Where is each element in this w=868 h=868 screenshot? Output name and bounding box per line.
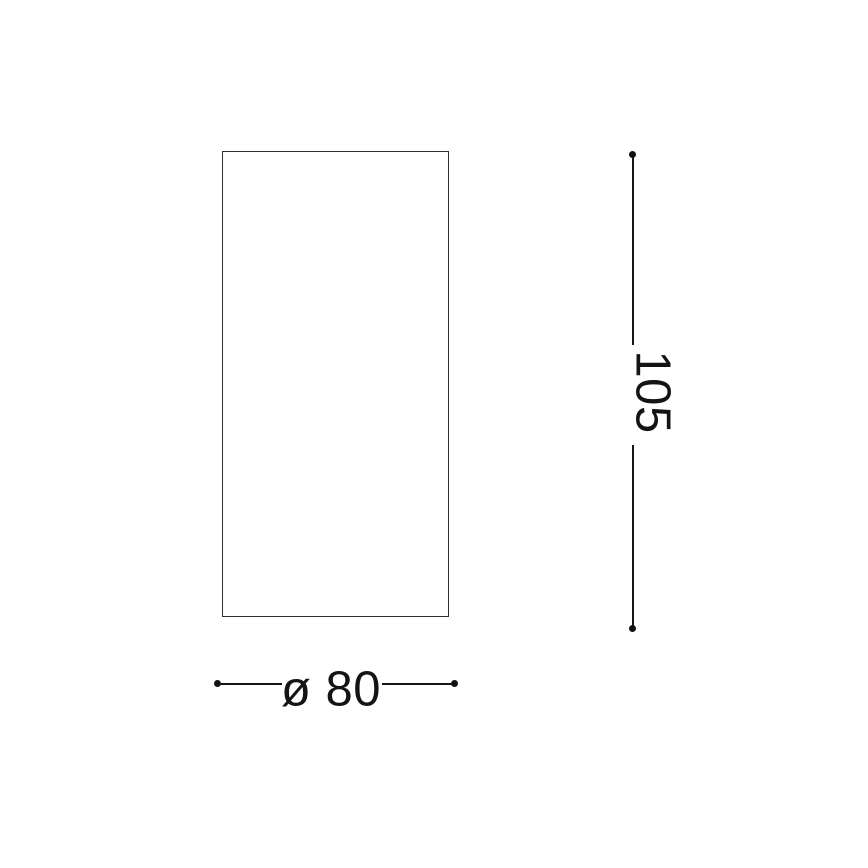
product-outline-rectangle bbox=[222, 151, 449, 617]
diameter-dimension-label: ø 80 bbox=[281, 666, 381, 715]
diameter-dimension-endpoint-right bbox=[451, 680, 458, 687]
height-dimension-line-lower bbox=[632, 445, 634, 630]
height-dimension-line-upper bbox=[632, 156, 634, 345]
diameter-dimension-line-right bbox=[382, 683, 455, 685]
height-dimension-endpoint-bottom bbox=[629, 625, 636, 632]
dimension-drawing: 105 ø 80 bbox=[0, 0, 868, 868]
height-dimension-label: 105 bbox=[628, 350, 677, 433]
diameter-dimension-line-left bbox=[218, 683, 282, 685]
